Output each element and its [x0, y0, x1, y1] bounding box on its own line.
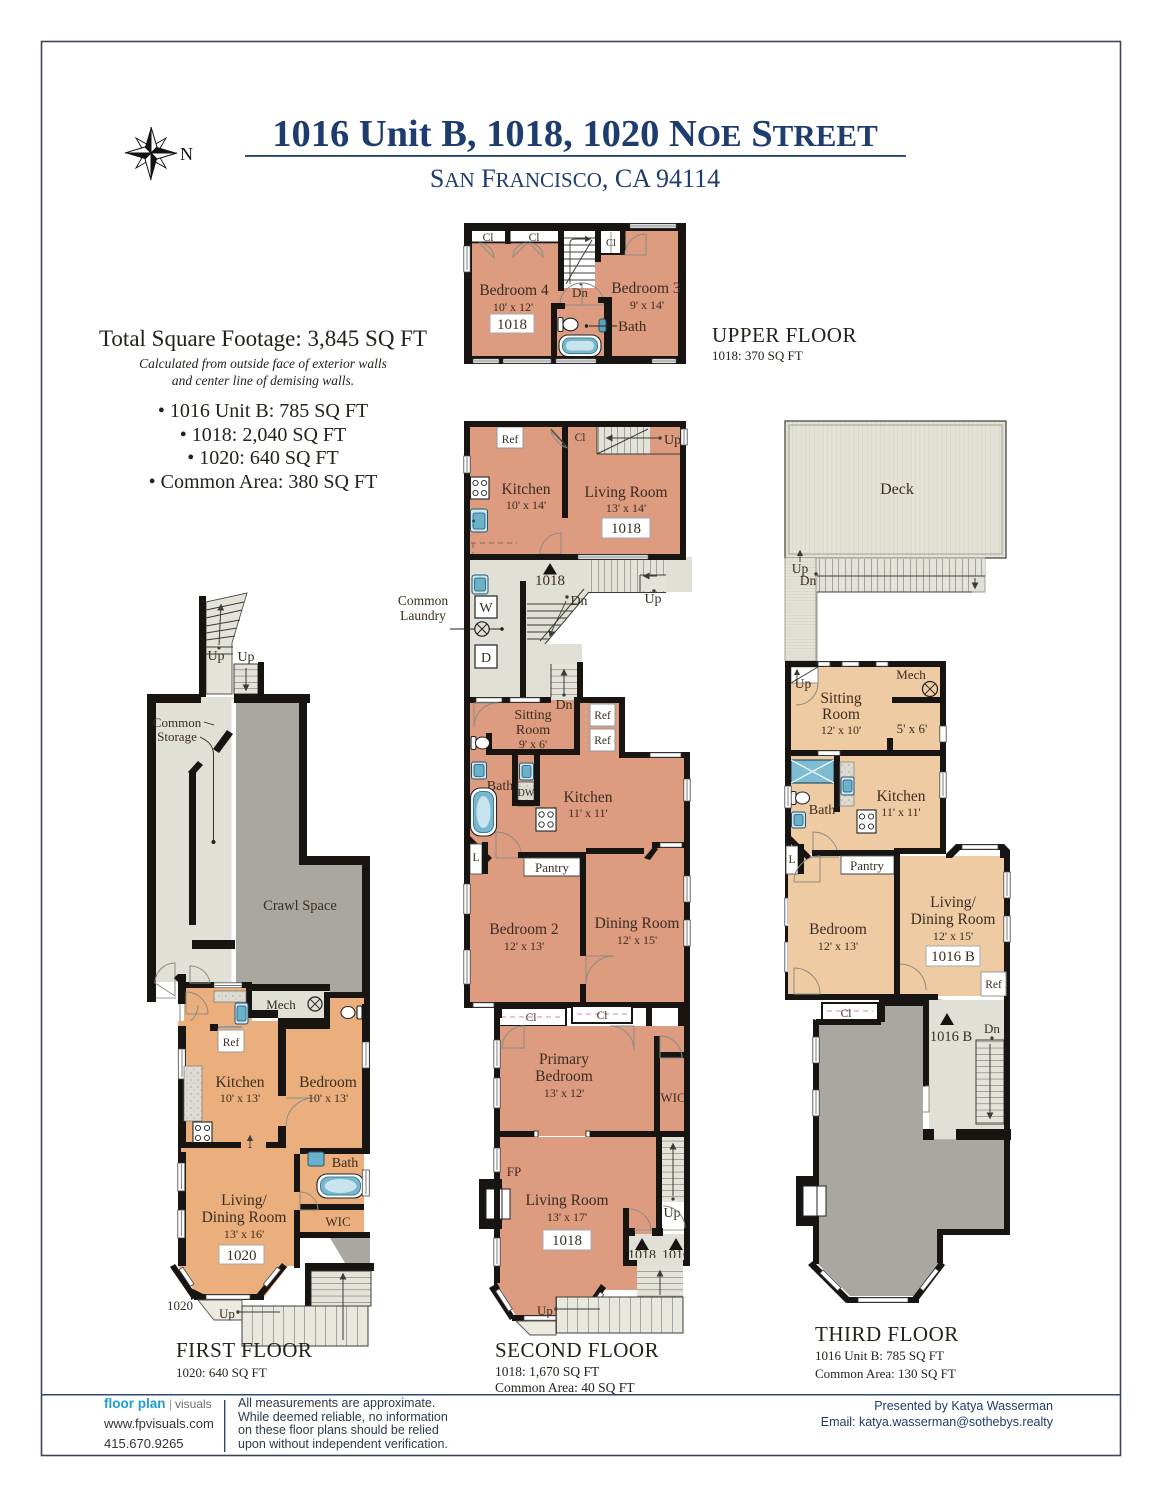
svg-text:1018: 1018: [611, 521, 641, 537]
svg-text:1020: 640 SQ FT: 1020: 640 SQ FT: [176, 1365, 267, 1380]
svg-text:Ref: Ref: [594, 710, 611, 722]
svg-text:Dn: Dn: [572, 285, 588, 300]
svg-text:1018: 1018: [497, 317, 527, 333]
svg-text:Living/: Living/: [930, 894, 976, 911]
svg-text:Bath: Bath: [332, 1156, 358, 1171]
svg-text:Calculated from outside face o: Calculated from outside face of exterior…: [139, 356, 387, 371]
svg-text:D: D: [481, 651, 491, 666]
svg-text:13' x 17': 13' x 17': [547, 1210, 587, 1224]
svg-text:Cl: Cl: [606, 238, 616, 249]
svg-text:Bedroom: Bedroom: [299, 1074, 357, 1091]
svg-text:1018: 1018: [552, 1233, 582, 1249]
svg-text:12' x 10': 12' x 10': [821, 723, 861, 737]
svg-text:Pantry: Pantry: [850, 858, 884, 873]
svg-text:Cl: Cl: [526, 1012, 537, 1024]
svg-text:1016 B: 1016 B: [930, 1029, 972, 1045]
svg-text:Bath: Bath: [809, 803, 835, 818]
svg-text:All measurements are approxima: All measurements are approximate.: [238, 1396, 435, 1410]
svg-text:• Common Area: 380 SQ FT: • Common Area: 380 SQ FT: [149, 471, 378, 493]
svg-text:Bedroom 4: Bedroom 4: [479, 282, 549, 299]
svg-text:Up: Up: [795, 676, 812, 691]
svg-text:Dn: Dn: [570, 594, 587, 609]
svg-text:12' x 15': 12' x 15': [617, 933, 657, 947]
svg-text:10' x 12': 10' x 12': [493, 300, 533, 314]
svg-text:12' x 15': 12' x 15': [933, 929, 973, 943]
svg-text:415.670.9265: 415.670.9265: [104, 1436, 184, 1451]
svg-text:12' x 13': 12' x 13': [504, 939, 544, 953]
svg-text:While deemed reliable, no info: While deemed reliable, no information: [238, 1410, 448, 1424]
svg-text:Up: Up: [644, 592, 661, 607]
svg-text:Living Room: Living Room: [525, 1192, 608, 1209]
svg-text:• 1020: 640 SQ FT: • 1020: 640 SQ FT: [187, 447, 338, 469]
svg-text:Up: Up: [537, 1303, 553, 1318]
svg-text:10' x 13': 10' x 13': [308, 1091, 348, 1105]
svg-text:Kitchen: Kitchen: [563, 789, 612, 806]
svg-text:Cl: Cl: [841, 1008, 852, 1020]
svg-text:1020: 1020: [167, 1298, 193, 1313]
svg-text:Presented by Katya Wasserman: Presented by Katya Wasserman: [874, 1399, 1053, 1413]
svg-text:Dining Room: Dining Room: [595, 915, 680, 932]
svg-text:W: W: [479, 601, 493, 616]
svg-text:Dining Room: Dining Room: [911, 911, 996, 928]
svg-text:10' x 13': 10' x 13': [220, 1091, 260, 1105]
svg-text:Dining Room: Dining Room: [202, 1209, 287, 1226]
svg-text:and center line of demising wa: and center line of demising walls.: [172, 373, 354, 388]
svg-text:1018: 370 SQ FT: 1018: 370 SQ FT: [712, 348, 803, 363]
svg-text:Kitchen: Kitchen: [501, 481, 550, 498]
svg-text:upon without independent verif: upon without independent verification.: [238, 1437, 448, 1451]
svg-text:Deck: Deck: [880, 481, 914, 498]
svg-text:1018: 1,670 SQ FT: 1018: 1,670 SQ FT: [495, 1364, 600, 1379]
svg-text:Room: Room: [516, 723, 550, 738]
svg-text:Bath: Bath: [618, 319, 647, 335]
svg-text:floor plan: floor plan: [104, 1396, 166, 1411]
svg-text:12' x 13': 12' x 13': [818, 939, 858, 953]
svg-text:WIC: WIC: [660, 1090, 685, 1105]
svg-text:Common: Common: [398, 593, 449, 608]
svg-text:www.fpvisuals.com: www.fpvisuals.com: [103, 1416, 214, 1431]
svg-text:1016 Unit B: 785 SQ FT: 1016 Unit B: 785 SQ FT: [815, 1348, 944, 1363]
svg-text:Up: Up: [207, 649, 224, 664]
svg-text:L: L: [472, 852, 479, 864]
svg-text:Pantry: Pantry: [535, 860, 569, 875]
svg-text:13' x 16': 13' x 16': [224, 1227, 264, 1241]
svg-text:Ref: Ref: [502, 434, 519, 446]
svg-text:10' x 14': 10' x 14': [506, 498, 546, 512]
svg-text:Dn: Dn: [555, 698, 572, 713]
svg-text:Dn: Dn: [984, 1021, 1000, 1036]
svg-text:DW: DW: [518, 788, 535, 799]
svg-text:Common: Common: [153, 715, 202, 730]
svg-text:Laundry: Laundry: [400, 608, 446, 623]
svg-text:Common Area: 40 SQ FT: Common Area: 40 SQ FT: [495, 1380, 635, 1395]
svg-text:1020: 1020: [227, 1248, 257, 1264]
svg-text:Kitchen: Kitchen: [215, 1074, 264, 1091]
svg-text:Bedroom 3: Bedroom 3: [611, 280, 681, 297]
svg-text:11' x 11': 11' x 11': [568, 806, 607, 820]
svg-text:Crawl Space: Crawl Space: [263, 898, 337, 914]
svg-text:Cl: Cl: [597, 1010, 608, 1022]
svg-text:Mech: Mech: [896, 667, 926, 682]
svg-text:1018: 1018: [535, 573, 565, 589]
svg-text:on these floor plans should be: on these floor plans should be relied: [238, 1423, 439, 1437]
svg-text:Bedroom: Bedroom: [809, 921, 867, 938]
svg-text:Sitting: Sitting: [514, 708, 551, 723]
svg-text:13' x 12': 13' x 12': [544, 1086, 584, 1100]
svg-text:• 1018: 2,040 SQ FT: • 1018: 2,040 SQ FT: [180, 424, 346, 446]
svg-text:Dn: Dn: [800, 573, 817, 588]
svg-text:13' x 14': 13' x 14': [606, 501, 646, 515]
svg-text:Sitting: Sitting: [820, 690, 862, 707]
svg-text:1016 B: 1016 B: [931, 949, 975, 965]
svg-text:Up: Up: [237, 650, 254, 665]
svg-text:Cl: Cl: [575, 432, 586, 444]
svg-text:Bedroom 2: Bedroom 2: [489, 921, 558, 938]
svg-text:SECOND FLOOR: SECOND FLOOR: [495, 1338, 659, 1362]
svg-text:L: L: [788, 854, 795, 866]
svg-text:Ref: Ref: [223, 1037, 240, 1049]
svg-text:Email: katya.wasserman@sotheby: Email: katya.wasserman@sothebys.realty: [821, 1415, 1054, 1429]
svg-text:Bedroom: Bedroom: [535, 1068, 593, 1085]
svg-text:Ref: Ref: [985, 979, 1002, 991]
svg-text:THIRD FLOOR: THIRD FLOOR: [815, 1322, 959, 1346]
svg-text:11' x 11': 11' x 11': [881, 805, 920, 819]
svg-text:Kitchen: Kitchen: [876, 788, 925, 805]
svg-text:Living/: Living/: [221, 1192, 267, 1209]
svg-text:Ref: Ref: [594, 735, 611, 747]
svg-text:Up: Up: [219, 1306, 235, 1321]
svg-text:FP: FP: [507, 1164, 521, 1179]
svg-text:Common Area: 130 SQ FT: Common Area: 130 SQ FT: [815, 1366, 956, 1381]
svg-text:FIRST FLOOR: FIRST FLOOR: [176, 1338, 312, 1362]
svg-text:UPPER FLOOR: UPPER FLOOR: [712, 323, 857, 347]
svg-text:Room: Room: [822, 706, 860, 723]
svg-text:N: N: [180, 144, 193, 164]
svg-text:9' x 14': 9' x 14': [630, 298, 664, 312]
svg-text:• 1016 Unit B: 785 SQ FT: • 1016 Unit B: 785 SQ FT: [158, 400, 368, 422]
svg-text:Living Room: Living Room: [584, 484, 667, 501]
svg-text:Storage: Storage: [157, 729, 197, 744]
svg-text:Mech: Mech: [266, 997, 296, 1012]
svg-text:WIC: WIC: [325, 1214, 350, 1229]
svg-text:|: |: [169, 1397, 172, 1411]
svg-text:visuals: visuals: [175, 1397, 212, 1411]
svg-text:1016 Unit B, 1018, 1020 NOE ST: 1016 Unit B, 1018, 1020 NOE STREET: [272, 113, 878, 155]
svg-text:Total Square Footage: 3,845 SQ: Total Square Footage: 3,845 SQ FT: [99, 326, 427, 351]
svg-text:9' x 6': 9' x 6': [519, 737, 547, 751]
svg-text:SAN FRANCISCO, CA 94114: SAN FRANCISCO, CA 94114: [430, 164, 720, 193]
svg-text:Up: Up: [664, 433, 681, 448]
svg-text:5' x 6': 5' x 6': [897, 721, 928, 736]
svg-text:Primary: Primary: [539, 1051, 589, 1068]
